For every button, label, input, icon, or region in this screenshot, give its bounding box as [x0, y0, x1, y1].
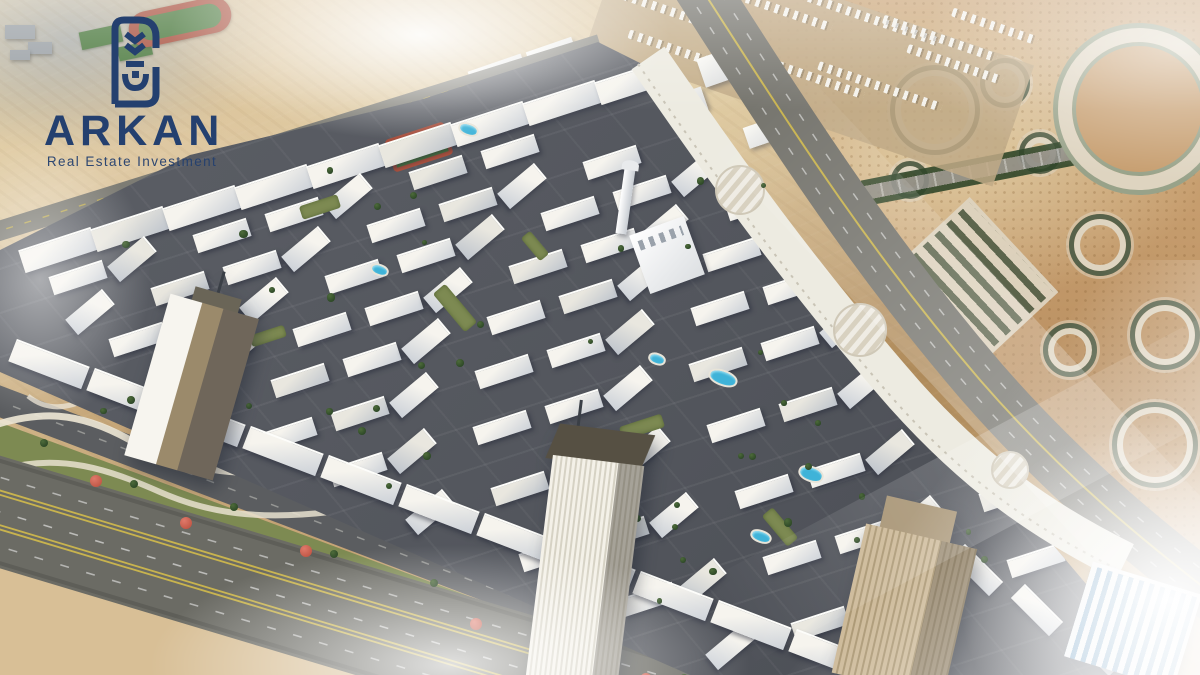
street-tree	[805, 463, 812, 470]
street-tree	[326, 408, 332, 414]
street-tree	[410, 192, 417, 199]
tower-body	[525, 455, 645, 675]
street-tree	[456, 359, 464, 367]
street-tree	[761, 183, 766, 188]
palm-tree	[230, 503, 238, 511]
street-tree	[657, 598, 662, 603]
street-tree	[100, 408, 106, 414]
street-tree	[709, 568, 717, 576]
street-tree	[697, 177, 704, 184]
street-tree	[327, 293, 336, 302]
street-tree	[246, 403, 252, 409]
brand-tagline: Real Estate Investment	[44, 154, 220, 169]
street-tree	[418, 362, 425, 369]
street-tree	[781, 400, 787, 406]
flowering-tree	[300, 545, 312, 557]
street-tree	[680, 557, 686, 563]
palm-tree	[130, 480, 138, 488]
street-tree	[784, 518, 793, 527]
street-tree	[618, 245, 624, 251]
street-tree	[122, 241, 129, 248]
aerial-masterplan-render: ARKAN Real Estate Investment	[0, 0, 1200, 675]
street-tree	[758, 350, 763, 355]
flowering-tree	[90, 475, 102, 487]
street-tree	[423, 452, 430, 459]
street-tree	[815, 420, 821, 426]
street-tree	[358, 427, 366, 435]
street-tree	[685, 244, 690, 249]
street-tree	[674, 502, 680, 508]
flowering-tree	[470, 618, 482, 630]
street-tree	[374, 203, 381, 210]
street-tree	[749, 453, 756, 460]
street-tree	[422, 240, 427, 245]
street-tree	[477, 321, 484, 328]
tower-body	[832, 524, 977, 675]
palm-tree	[430, 579, 438, 587]
street-tree	[738, 453, 744, 459]
street-tree	[588, 339, 593, 344]
street-tree	[327, 167, 334, 174]
flowering-tree	[180, 517, 192, 529]
street-tree	[672, 524, 678, 530]
arkan-logo: ARKAN Real Estate Investment	[44, 8, 220, 169]
palm-tree	[40, 439, 48, 447]
arkan-arch-monogram-icon	[101, 12, 163, 108]
street-tree	[373, 405, 380, 412]
street-tree	[386, 483, 392, 489]
street-tree	[239, 230, 247, 238]
palm-tree	[330, 550, 338, 558]
brand-name: ARKAN	[44, 110, 220, 153]
